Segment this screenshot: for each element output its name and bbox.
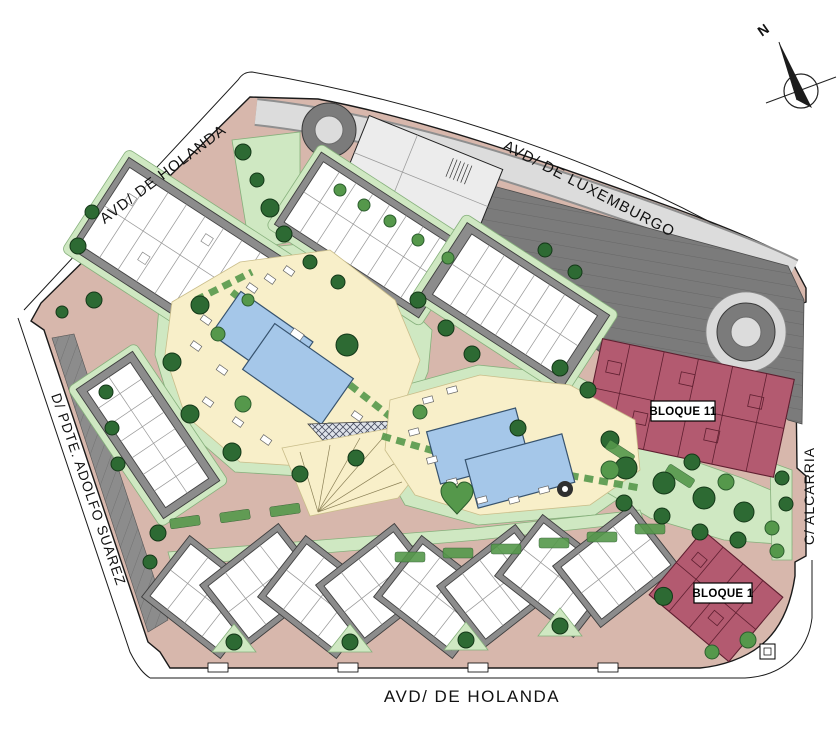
street-label-avd-holanda-bottom: AVD/ DE HOLANDA — [384, 687, 560, 706]
utility-shed — [760, 644, 775, 659]
compass-north-label: N — [754, 20, 771, 39]
bloque-1-label: BLOQUE 1 — [692, 588, 753, 600]
site-plan: BLOQUE 11 BLOQUE 1 — [0, 0, 840, 742]
roundabout-east — [706, 292, 786, 372]
street-label-alcarria: C/ ALCARRIA — [801, 447, 817, 545]
bloque-11-label: BLOQUE 11 — [649, 406, 717, 418]
fountain-icon — [557, 481, 573, 497]
north-arrow-compass-icon: N — [754, 20, 836, 108]
